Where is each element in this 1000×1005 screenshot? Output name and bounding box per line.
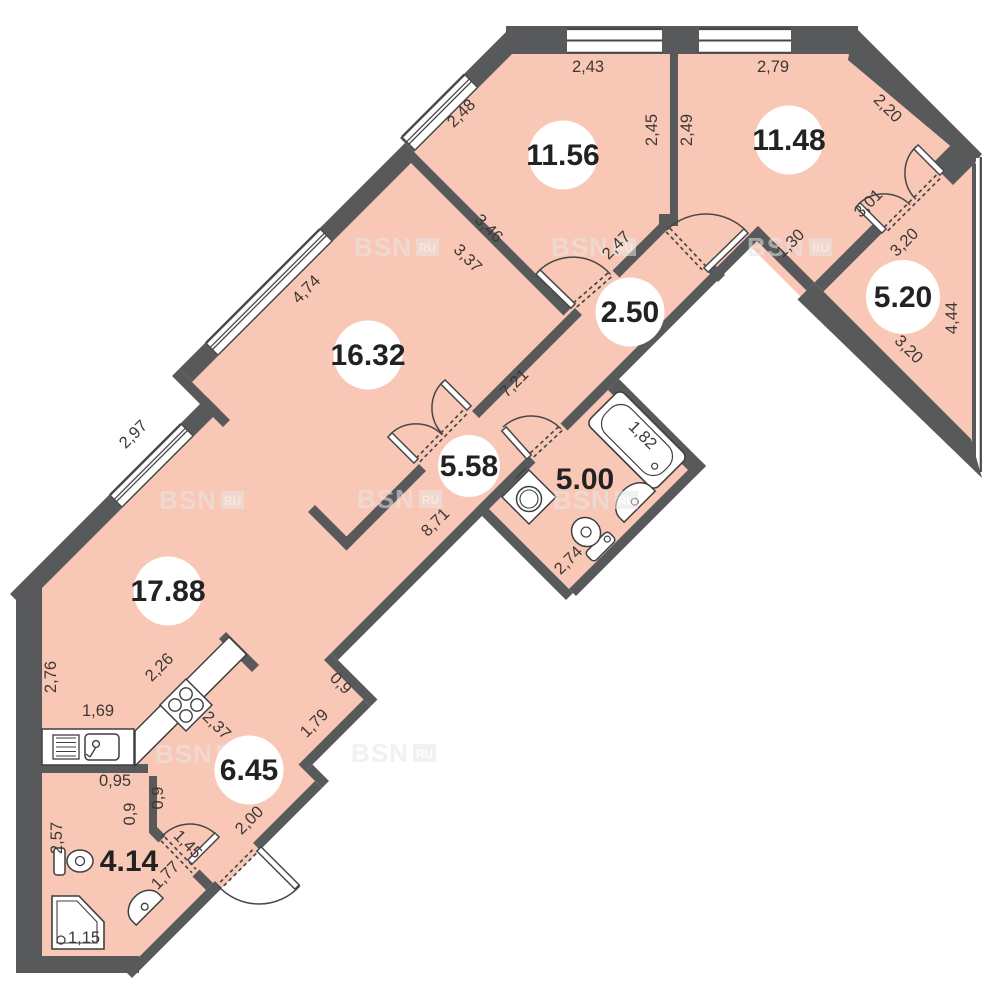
svg-text:6.45: 6.45 bbox=[220, 754, 278, 787]
svg-text:2,57: 2,57 bbox=[48, 822, 66, 854]
svg-text:5.58: 5.58 bbox=[440, 450, 498, 483]
svg-text:16.32: 16.32 bbox=[330, 339, 405, 372]
svg-text:2,45: 2,45 bbox=[643, 114, 661, 146]
svg-text:0,95: 0,95 bbox=[99, 772, 131, 790]
svg-text:BSN: BSN bbox=[551, 232, 609, 262]
svg-text:17.88: 17.88 bbox=[130, 575, 205, 608]
svg-text:RU: RU bbox=[618, 494, 635, 508]
svg-text:RU: RU bbox=[419, 241, 436, 255]
svg-text:11.56: 11.56 bbox=[526, 139, 599, 172]
svg-text:RU: RU bbox=[416, 747, 433, 761]
svg-text:5.20: 5.20 bbox=[874, 281, 932, 314]
svg-text:BSN: BSN bbox=[354, 232, 412, 262]
svg-text:1,69: 1,69 bbox=[82, 702, 114, 720]
svg-text:BSN: BSN bbox=[351, 738, 409, 768]
svg-text:11.48: 11.48 bbox=[752, 124, 825, 157]
svg-text:0,9: 0,9 bbox=[149, 787, 167, 810]
svg-text:RU: RU bbox=[812, 241, 829, 255]
svg-text:RU: RU bbox=[224, 494, 241, 508]
svg-text:2,76: 2,76 bbox=[42, 661, 60, 693]
svg-text:4.14: 4.14 bbox=[100, 845, 159, 878]
svg-text:BSN: BSN bbox=[159, 485, 217, 515]
svg-text:0,9: 0,9 bbox=[121, 803, 139, 826]
svg-text:BSN: BSN bbox=[155, 739, 213, 769]
svg-text:BSN: BSN bbox=[357, 484, 415, 514]
svg-text:5.00: 5.00 bbox=[556, 463, 614, 496]
svg-text:2.50: 2.50 bbox=[601, 296, 659, 329]
svg-text:2,79: 2,79 bbox=[757, 58, 789, 76]
svg-text:2,43: 2,43 bbox=[572, 58, 604, 76]
svg-text:1,15: 1,15 bbox=[68, 929, 100, 947]
svg-text:RU: RU bbox=[422, 493, 439, 507]
svg-text:4,44: 4,44 bbox=[943, 302, 961, 334]
svg-text:2,49: 2,49 bbox=[678, 114, 696, 146]
